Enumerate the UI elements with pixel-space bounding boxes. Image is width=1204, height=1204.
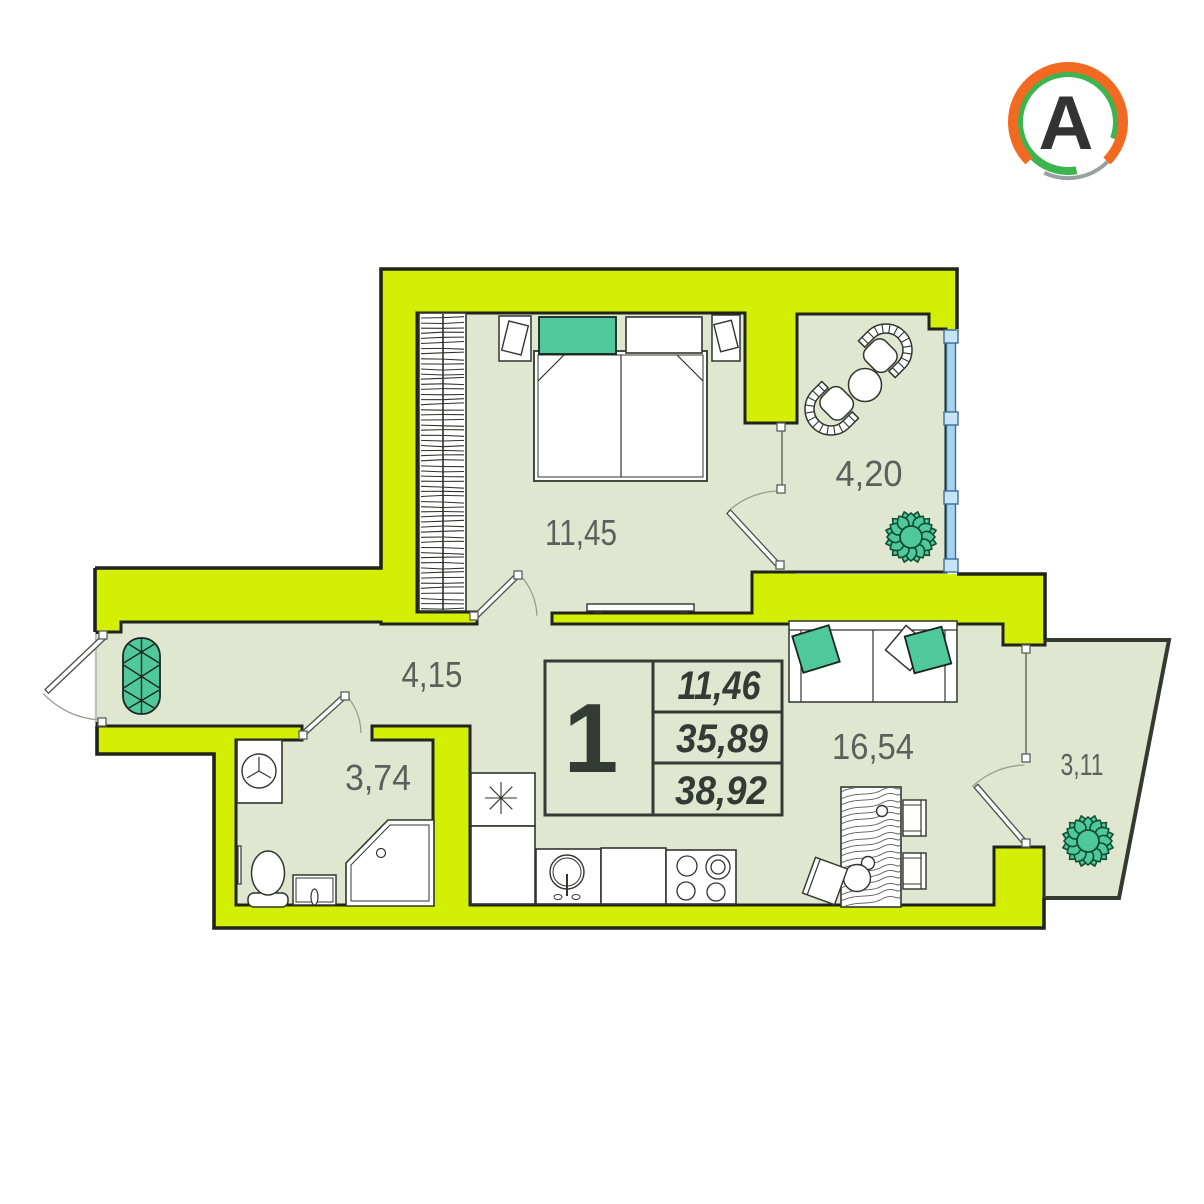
svg-text:A: A [1039,81,1094,166]
svg-text:11,45: 11,45 [545,512,617,553]
svg-text:1: 1 [564,683,619,793]
svg-text:3,74: 3,74 [345,757,411,798]
svg-text:16,54: 16,54 [832,726,914,767]
svg-text:4,20: 4,20 [836,453,903,494]
svg-text:11,46: 11,46 [678,664,762,708]
svg-text:3,11: 3,11 [1061,747,1104,782]
svg-text:38,92: 38,92 [675,769,767,813]
svg-text:4,15: 4,15 [402,654,463,695]
svg-text:35,89: 35,89 [676,717,769,761]
